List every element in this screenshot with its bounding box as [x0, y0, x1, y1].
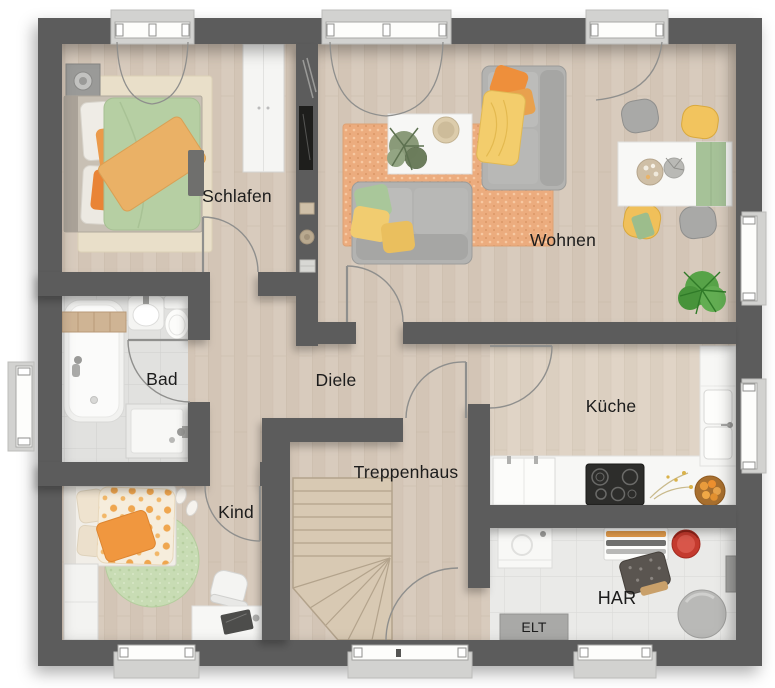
water-tank: [678, 590, 726, 638]
wall-bad-diele-upper: [188, 272, 210, 340]
window-har: [574, 645, 656, 678]
shower-drain: [169, 437, 175, 443]
window-kind: [114, 645, 199, 678]
cooktop: [586, 464, 644, 505]
sofa-chaise: [476, 63, 566, 190]
headboard: [64, 96, 78, 232]
red-basket: [672, 530, 700, 558]
sofa-two-seater: [349, 182, 472, 264]
double-bed: [64, 96, 208, 232]
tub-drain: [91, 397, 98, 404]
wall-wohnen-diele-left: [296, 322, 356, 344]
label-bad: Bad: [146, 369, 178, 389]
shower: [126, 404, 188, 458]
label-schlafen: Schlafen: [202, 186, 272, 206]
label-treppenhaus: Treppenhaus: [354, 462, 459, 482]
label-kueche: Küche: [586, 396, 637, 416]
bathtub: [62, 300, 126, 422]
nightstand: [66, 64, 100, 98]
clothes-dark: [606, 540, 666, 546]
wall-diele-treppenhaus: [290, 418, 403, 442]
flower-bowl: [637, 159, 663, 185]
wardrobe-kind: [64, 564, 98, 640]
floor-plan-canvas: ELT: [0, 0, 775, 688]
washbasin: [128, 296, 164, 330]
tub-faucet: [74, 356, 82, 364]
label-kind: Kind: [218, 502, 254, 522]
yellow-cushion: [380, 220, 415, 254]
wall-kueche-treppenhaus: [468, 404, 490, 588]
washing-machine: [498, 528, 552, 568]
fruit-bowl: [695, 476, 725, 506]
window-bad: [8, 362, 34, 451]
elt-panel: ELT: [500, 614, 568, 640]
wall-bad-kind: [38, 462, 205, 486]
wall-cabinet: [726, 556, 736, 592]
label-wohnen: Wohnen: [530, 230, 596, 250]
yellow-throw: [476, 90, 526, 167]
dining-chair-gray: [678, 204, 718, 240]
window-kueche: [741, 379, 766, 473]
tv: [299, 106, 313, 170]
wall-kueche-har: [468, 505, 736, 528]
sink-basin: [704, 390, 732, 424]
kids-bed: [64, 486, 176, 566]
wall-schlafen-bad: [38, 272, 203, 296]
wardrobe: [243, 44, 284, 172]
wall-kind-treppenhaus: [262, 418, 290, 640]
desk: [192, 606, 262, 644]
wall-schlafen-diele: [258, 272, 296, 296]
label-har: HAR: [598, 588, 637, 608]
window-wohnen-right: [741, 212, 766, 305]
wall-wohnen-kueche: [403, 322, 736, 344]
fridge-unit: [493, 456, 555, 505]
door-handle: [396, 649, 401, 657]
toilet: [164, 296, 190, 339]
label-elt: ELT: [521, 619, 546, 635]
kitchen-counter-right: [700, 346, 736, 466]
clothes-orange: [606, 531, 666, 537]
shelf-books: [300, 203, 314, 214]
headboard: [64, 486, 76, 566]
label-diele: Diele: [316, 370, 357, 390]
wall-right: [736, 18, 762, 666]
desk-mug: [253, 615, 260, 622]
sink-basin: [704, 427, 732, 459]
wall-left: [38, 18, 62, 666]
basin-tap: [143, 296, 149, 304]
coffee-table: [387, 114, 472, 174]
